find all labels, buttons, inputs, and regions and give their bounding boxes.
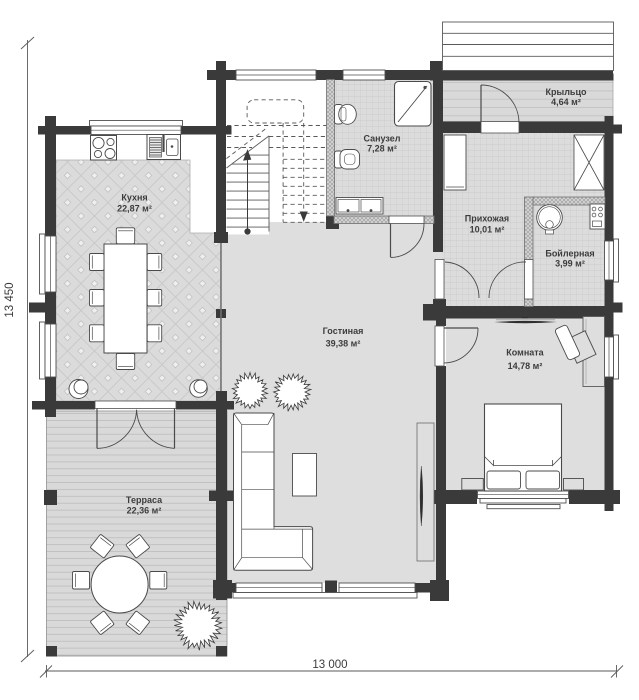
svg-text:39,38 м²: 39,38 м² bbox=[326, 339, 361, 349]
svg-text:Кухня: Кухня bbox=[121, 193, 147, 203]
svg-text:7,28 м²: 7,28 м² bbox=[367, 144, 397, 154]
svg-text:13 450: 13 450 bbox=[4, 282, 16, 317]
svg-text:14,78 м²: 14,78 м² bbox=[508, 361, 543, 371]
svg-text:Гостиная: Гостиная bbox=[323, 326, 364, 336]
svg-text:Бойлерная: Бойлерная bbox=[545, 249, 594, 259]
svg-text:13 000: 13 000 bbox=[312, 659, 347, 671]
svg-text:Крыльцо: Крыльцо bbox=[546, 87, 587, 97]
svg-text:10,01 м²: 10,01 м² bbox=[470, 225, 505, 235]
svg-text:22,36 м²: 22,36 м² bbox=[127, 506, 162, 516]
svg-text:Санузел: Санузел bbox=[363, 134, 400, 144]
svg-text:4,64 м²: 4,64 м² bbox=[551, 97, 581, 107]
svg-text:22,87 м²: 22,87 м² bbox=[117, 204, 152, 214]
svg-text:Терраса: Терраса bbox=[126, 495, 163, 505]
svg-text:3,99 м²: 3,99 м² bbox=[555, 259, 585, 269]
svg-text:Комната: Комната bbox=[506, 348, 544, 358]
svg-text:Прихожая: Прихожая bbox=[465, 214, 509, 224]
